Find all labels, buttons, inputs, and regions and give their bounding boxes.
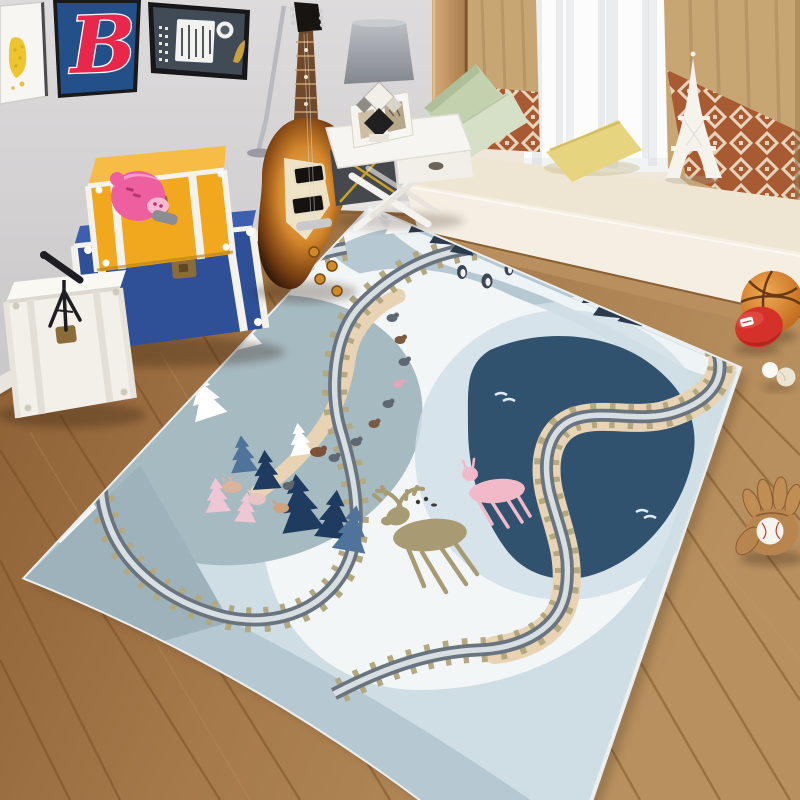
drawer-pull xyxy=(429,162,444,170)
room-scene: B xyxy=(0,0,800,800)
baseball xyxy=(757,518,784,545)
red-sox-letter-b: B xyxy=(66,0,137,92)
white-trunk xyxy=(6,270,134,418)
room-photo: B xyxy=(0,0,800,800)
lamp-shade xyxy=(344,22,414,84)
frame-red-sox-poster: B xyxy=(53,0,141,98)
frame-yellow-art xyxy=(0,2,48,104)
frame-soundwave-art xyxy=(148,2,250,80)
